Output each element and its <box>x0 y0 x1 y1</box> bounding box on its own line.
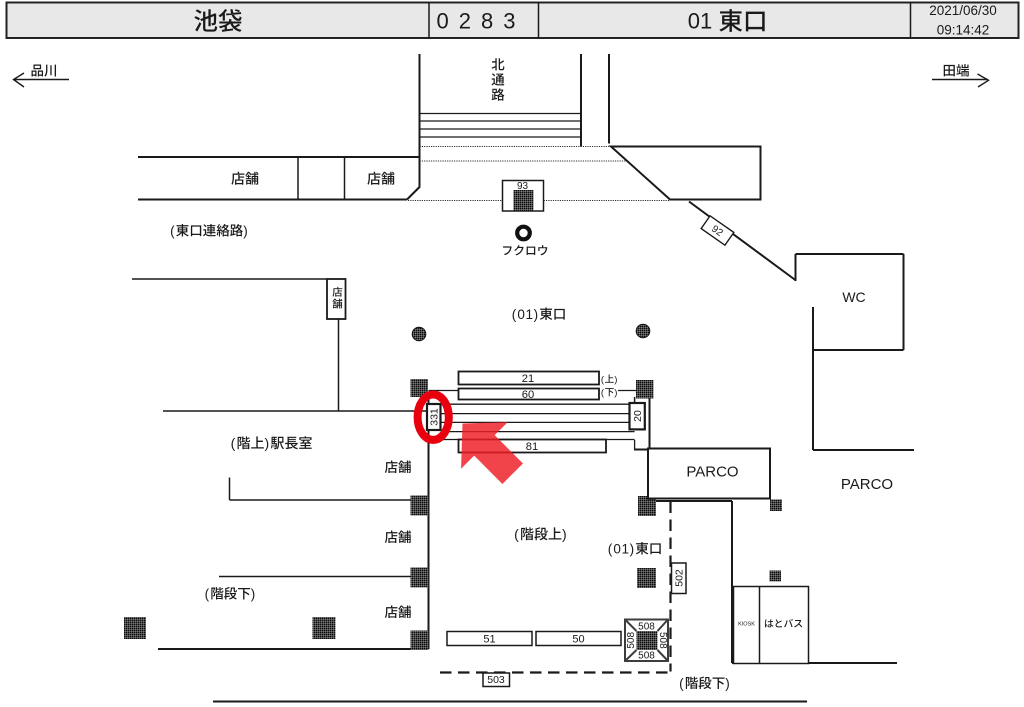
svg-text:1: 1 <box>622 541 630 556</box>
svg-text:50: 50 <box>572 633 584 645</box>
svg-text:21: 21 <box>522 373 534 385</box>
svg-text:502: 502 <box>673 569 685 587</box>
svg-text:): ) <box>562 526 567 542</box>
svg-text:93: 93 <box>517 181 529 192</box>
svg-text:(: ( <box>170 223 175 238</box>
svg-text:PARCO: PARCO <box>841 476 893 493</box>
svg-text:81: 81 <box>526 441 538 453</box>
svg-text:0: 0 <box>517 307 525 322</box>
svg-text:508: 508 <box>638 622 655 633</box>
svg-text:508: 508 <box>657 632 668 649</box>
svg-text:(: ( <box>601 374 605 385</box>
svg-text:503: 503 <box>487 674 505 686</box>
svg-text:1: 1 <box>526 307 534 322</box>
svg-text:(: ( <box>231 435 236 451</box>
svg-text:): ) <box>251 586 256 601</box>
svg-text:(: ( <box>514 526 519 542</box>
svg-text:): ) <box>725 676 730 691</box>
svg-text:331: 331 <box>428 408 440 426</box>
svg-text:): ) <box>534 307 539 322</box>
svg-text:): ) <box>630 541 635 556</box>
svg-text:01: 01 <box>688 9 712 34</box>
svg-text:0283: 0283 <box>437 9 526 34</box>
svg-text:51: 51 <box>483 633 495 645</box>
svg-text:(: ( <box>679 676 684 691</box>
svg-text:): ) <box>614 387 617 398</box>
svg-text:PARCO: PARCO <box>686 463 738 480</box>
svg-text:09:14:42: 09:14:42 <box>937 23 990 38</box>
svg-text:(: ( <box>512 307 517 322</box>
svg-text:(: ( <box>205 586 210 601</box>
svg-text:WC: WC <box>842 289 865 305</box>
svg-text:(: ( <box>601 387 605 398</box>
svg-text:(: ( <box>608 541 613 556</box>
svg-text:2021/06/30: 2021/06/30 <box>929 3 997 18</box>
svg-text:508: 508 <box>638 651 655 662</box>
svg-text:): ) <box>265 435 270 451</box>
svg-text:60: 60 <box>522 389 534 401</box>
svg-text:508: 508 <box>626 632 637 649</box>
svg-text:KIOSK: KIOSK <box>738 621 755 627</box>
svg-text:20: 20 <box>632 410 644 422</box>
svg-text:): ) <box>614 374 617 385</box>
svg-text:): ) <box>243 223 248 238</box>
svg-text:0: 0 <box>613 541 621 556</box>
